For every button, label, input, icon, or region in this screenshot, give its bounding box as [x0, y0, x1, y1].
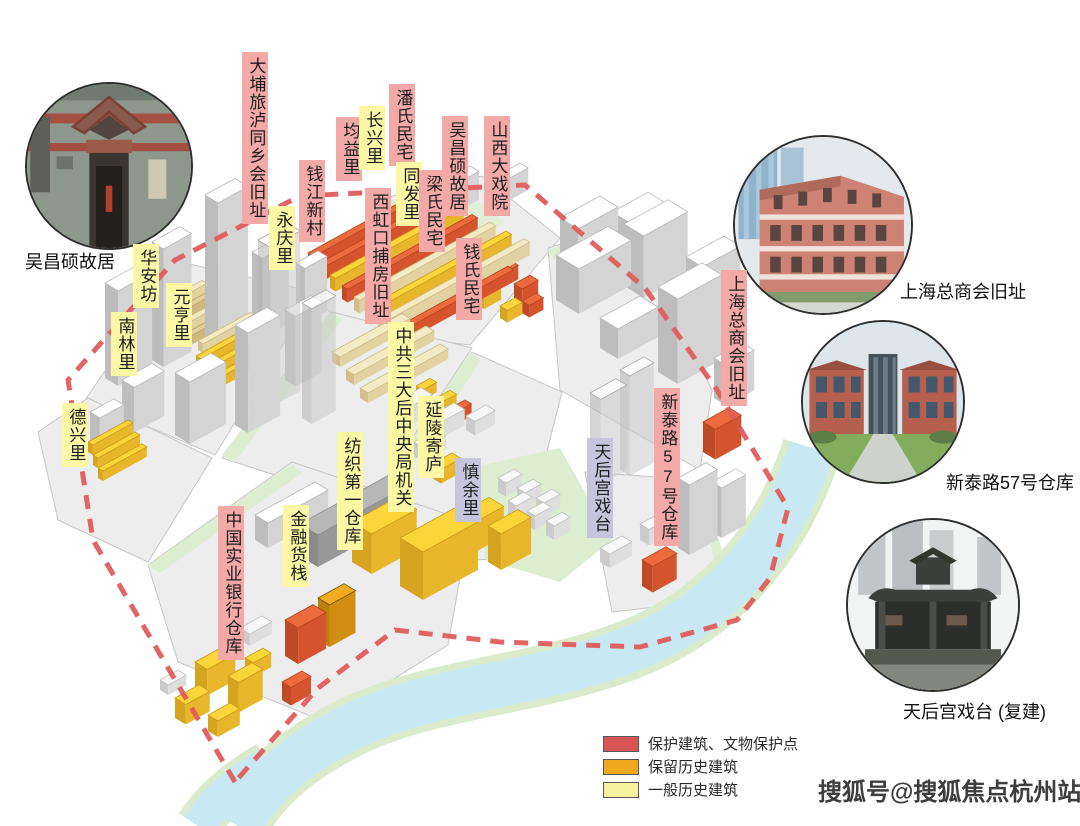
legend-swatch-protected: [603, 736, 639, 752]
map-legend: 保护建筑、文物保护点 保留历史建筑 一般历史建筑: [603, 732, 798, 801]
legend-swatch-retained: [603, 759, 639, 775]
photo-chamber-art: [735, 137, 911, 313]
photo-wuchangshuo-art: [27, 84, 191, 248]
photo-wuchangshuo-residence: [25, 82, 193, 250]
legend-label: 保护建筑、文物保护点: [648, 733, 798, 754]
map-label: 中国实业银行仓库: [218, 506, 244, 660]
historic-preservation-map-figure: 大埔旅泸同乡会旧址 钱江新村 永庆里 均益里 长兴里 潘氏民宅 同发里 西虹口捕…: [0, 0, 1080, 826]
map-label: 钱氏民宅: [456, 238, 482, 320]
map-label: 天后宫戏台: [587, 438, 613, 538]
photo-tianhou-art: [848, 520, 1018, 690]
photo-tianhou-stage: [846, 518, 1020, 692]
legend-swatch-general: [603, 782, 639, 798]
photo-caption: 新泰路57号仓库: [946, 469, 1074, 495]
photo-caption: 天后宫戏台 (复建): [903, 698, 1046, 724]
map-label: 德兴里: [62, 403, 88, 467]
legend-row-retained: 保留历史建筑: [603, 755, 798, 778]
legend-label: 一般历史建筑: [648, 779, 738, 800]
map-label: 元亨里: [166, 283, 192, 347]
photo-caption: 吴昌硕故居: [25, 248, 115, 274]
legend-row-protected: 保护建筑、文物保护点: [603, 732, 798, 755]
map-label: 金融货栈: [283, 505, 309, 587]
watermark-text: 搜狐号@搜狐焦点杭州站: [818, 772, 1080, 807]
map-label: 永庆里: [269, 206, 295, 270]
photo-chamber-of-commerce: [733, 135, 913, 315]
photo-xintai-warehouse: [801, 320, 965, 484]
legend-label: 保留历史建筑: [648, 756, 738, 777]
map-label: 潘氏民宅: [389, 84, 415, 166]
map-label: 中共三大后中央局机关: [388, 322, 414, 512]
photo-caption: 上海总商会旧址: [900, 278, 1026, 304]
map-label: 延陵寄庐: [418, 396, 444, 478]
legend-row-general: 一般历史建筑: [603, 778, 798, 801]
map-label: 上海总商会旧址: [721, 270, 747, 406]
map-label: 华安坊: [133, 244, 159, 308]
photo-xintai-art: [803, 322, 963, 482]
map-label: 吴昌硕故居: [442, 116, 468, 216]
map-label: 钱江新村: [299, 160, 325, 242]
map-label: 山西大戏院: [484, 116, 510, 216]
map-label: 西虹口捕房旧址: [365, 188, 391, 324]
map-label: 纺织第一仓库: [337, 432, 363, 550]
map-label: 长兴里: [359, 106, 385, 170]
map-label: 大埔旅泸同乡会旧址: [242, 52, 268, 224]
map-label: 南林里: [111, 312, 137, 376]
map-label: 新泰路57号仓库: [654, 388, 680, 546]
map-label: 慎余里: [455, 458, 481, 522]
